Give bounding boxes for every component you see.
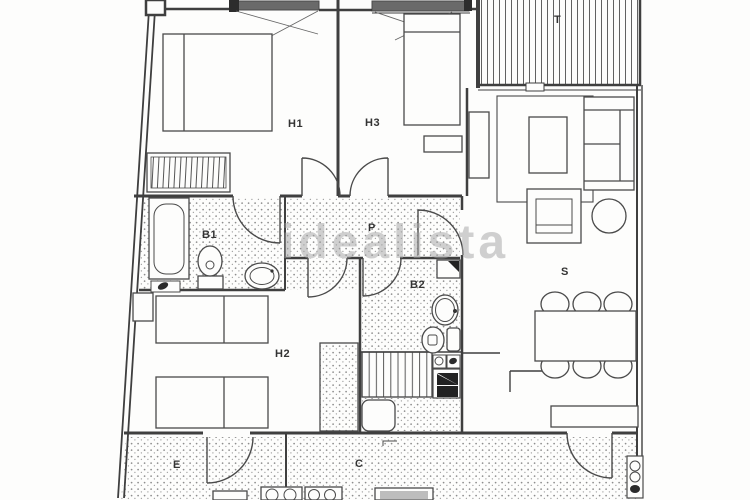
dining-table	[535, 311, 636, 361]
entry-floor	[121, 437, 284, 500]
radiator-h2	[133, 293, 153, 321]
room-label-h1: H1	[288, 118, 303, 130]
armchair	[527, 189, 581, 243]
floorplan-root: H1 H3 T B1 P B2 S H2 E C idealista	[0, 0, 750, 500]
room-label-h3: H3	[365, 117, 380, 129]
kitchen-table	[213, 491, 247, 500]
column	[146, 0, 165, 15]
terrace-door-track	[526, 83, 544, 91]
kitchen-hob-unit	[305, 487, 342, 500]
nightstand-h3	[424, 136, 462, 152]
idealista-watermark: idealista	[281, 219, 509, 267]
bed-h2-a	[156, 296, 268, 343]
terrace-decking	[480, 0, 640, 84]
room-label-b1: B1	[202, 229, 217, 241]
room-label-c: C	[355, 458, 363, 470]
cabinet-s	[469, 112, 489, 178]
toilet-b1-tank	[198, 276, 223, 289]
toilet-b2	[422, 327, 444, 353]
laundry-basin	[362, 400, 395, 431]
room-label-h2: H2	[275, 348, 290, 360]
room-label-e: E	[173, 459, 181, 471]
door-h3	[350, 158, 388, 196]
window-h3	[372, 1, 469, 11]
room-label-s: S	[561, 266, 569, 278]
bed-h1	[163, 34, 272, 131]
door-h1	[302, 158, 340, 196]
toilet-b2-cistern	[447, 328, 460, 351]
sideboard	[551, 406, 638, 427]
side-table	[592, 199, 626, 233]
room-label-b2: B2	[410, 279, 425, 291]
bed-h3	[404, 14, 460, 125]
coffee-table	[529, 117, 567, 173]
window-h1	[233, 1, 319, 10]
room-label-t: T	[554, 14, 561, 26]
wardrobe-h2-fill	[320, 343, 358, 431]
bed-h2-b	[156, 377, 268, 428]
shower-tray	[362, 352, 432, 397]
